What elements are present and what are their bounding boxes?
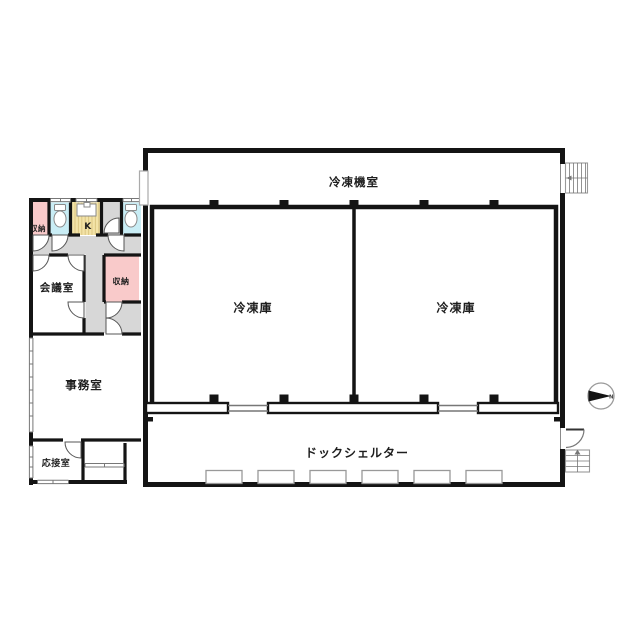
dock-door-3 — [310, 471, 346, 484]
floor-plan-svg: N 冷凍機室 冷凍庫 冷凍庫 ドックシェルター 事務室 会議室 応接室 収納 収… — [0, 0, 639, 640]
window-top-toilet-right — [123, 198, 140, 203]
dock-door-4 — [362, 471, 398, 484]
floor-plan-canvas: N 冷凍機室 冷凍庫 冷凍庫 ドックシェルター 事務室 会議室 応接室 収納 収… — [0, 0, 639, 640]
toilet-icon-right — [125, 205, 137, 228]
stairs-icon-bottom-right — [566, 450, 590, 473]
north-letter: N — [609, 395, 614, 401]
dock-door-6 — [466, 471, 502, 484]
label-office: 事務室 — [65, 378, 103, 392]
hallway-corridor-vertical — [86, 252, 105, 333]
label-freezer-right: 冷凍庫 — [436, 300, 475, 315]
dock-door-2 — [258, 471, 294, 484]
label-kitchen: K — [84, 222, 92, 232]
window-top-toilet-left — [51, 198, 71, 203]
label-dock-shelter: ドックシェルター — [305, 446, 409, 460]
label-meeting-room: 会議室 — [40, 281, 75, 294]
kitchen-sink-icon — [77, 203, 96, 217]
dock-wall-right-stub — [554, 417, 565, 422]
stairs-icon-top-right — [566, 163, 588, 193]
window-top-kitchen — [76, 198, 97, 203]
north-arrow-icon: N — [588, 383, 614, 409]
label-freezer-left: 冷凍庫 — [233, 300, 272, 315]
machine-room-window — [140, 171, 149, 205]
label-storage-top: 収納 — [30, 223, 46, 233]
dock-wall-left-stub — [143, 417, 153, 422]
toilet-icon-left — [54, 205, 66, 228]
hallway-strip — [33, 236, 141, 254]
label-machine-room: 冷凍機室 — [329, 175, 379, 189]
window-reception-left-wall — [29, 446, 34, 478]
window-reception-bottom-wall — [38, 479, 69, 485]
dock-door-1 — [206, 471, 242, 484]
label-storage-mid: 収納 — [113, 276, 130, 286]
right-wall-opening-dock — [561, 428, 570, 449]
window-office-left-wall — [29, 338, 34, 432]
dock-door-5 — [414, 471, 450, 484]
freezer-bottom-wall — [146, 403, 558, 413]
label-reception-room: 応接室 — [42, 457, 71, 469]
